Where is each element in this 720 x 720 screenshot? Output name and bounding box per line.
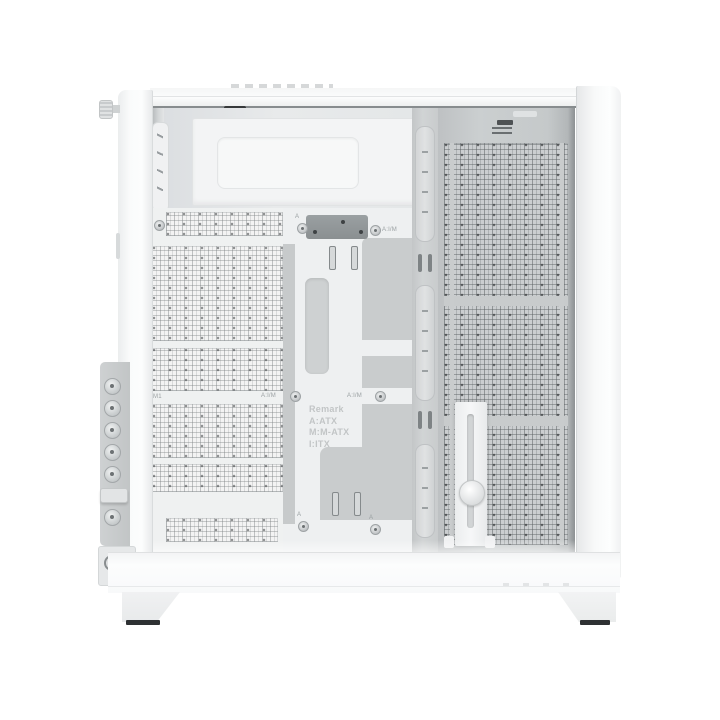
cable-tie-slot: [351, 246, 358, 270]
ssd-cover-plate: [306, 215, 368, 239]
tray-strap: [362, 388, 413, 404]
case-interior: M1: [150, 108, 575, 552]
cable-routing-channel: [412, 108, 441, 552]
pci-thumbscrew: [104, 509, 121, 526]
remark-atx: A:ATX: [309, 416, 349, 428]
cable-tie-slot: [354, 492, 361, 516]
remark-matx: M:M-ATX: [309, 427, 349, 439]
plate-screw: [313, 230, 317, 234]
standoff-screw: [370, 225, 381, 236]
standoff-screw: [375, 391, 386, 402]
case-foot-right: [558, 592, 616, 622]
capsule-ticks: [422, 296, 428, 390]
chamber-top-slot: [497, 120, 513, 125]
mesh-frame-strip: [450, 143, 454, 545]
standoff-label: A: [295, 214, 299, 220]
rear-pillar-tab: [116, 233, 120, 259]
mesh-panel: [166, 212, 283, 236]
channel-slot: [418, 411, 422, 429]
pci-thumbscrew: [104, 400, 121, 417]
motherboard-tray: A A:I/M A:I/M A:I/M A A Remark A:ATX M:M…: [283, 208, 413, 552]
left-mesh-column: M1: [150, 208, 284, 552]
panel-thumbscrew-knob: [99, 100, 113, 119]
tray-strap: [362, 340, 413, 356]
mesh-panel: [166, 518, 278, 542]
standoff-screw: [298, 521, 309, 532]
remark-title: Remark: [309, 404, 349, 416]
bracket-adjust-slot: [467, 414, 474, 528]
standoff-screw: [290, 391, 301, 402]
standoff-label: A:I/M: [347, 393, 362, 399]
capsule-ticks: [422, 137, 428, 231]
gpu-support-bracket: [455, 402, 487, 546]
cable-cover-capsule: [415, 444, 435, 538]
top-radiator-bracket: [192, 118, 418, 206]
chamber-top-tab: [513, 111, 537, 117]
standoff-label: A:I/M: [261, 393, 276, 399]
foot-pad-left: [126, 620, 160, 625]
product-photo-canvas: M1: [0, 0, 720, 720]
remark-itx: I:ITX: [309, 439, 349, 451]
case-foot-left: [122, 592, 180, 622]
mesh-divider-band: [444, 296, 568, 306]
pci-thumbscrew: [104, 378, 121, 395]
pci-thumbscrew: [104, 444, 121, 461]
case-top-panel: [150, 88, 578, 108]
rear-fan-rail: [152, 122, 169, 212]
mesh-frame-strip: [560, 143, 564, 545]
tray-left-recess: [283, 244, 295, 524]
chamber-edge-shadow: [568, 108, 575, 552]
standoff-screw: [154, 220, 165, 231]
motherboard-remark-label: Remark A:ATX M:M-ATX I:ITX: [309, 404, 349, 450]
pc-case: M1: [0, 0, 720, 720]
radiator-bracket-plate: [217, 137, 359, 189]
bottom-band-seam: [108, 586, 620, 587]
standoff-screw: [297, 223, 308, 234]
interior-bottom-highlight: [150, 540, 575, 552]
standoff-screw: [370, 524, 381, 535]
standoff-label: A: [297, 512, 301, 518]
cpu-cutout-recess: [305, 278, 329, 374]
front-pillar: [576, 86, 621, 578]
mesh-panel: [152, 348, 283, 391]
foot-pad-right: [580, 620, 610, 625]
standoff-label: A:I/M: [382, 227, 397, 233]
cable-cover-capsule: [415, 126, 435, 242]
cable-tie-slot: [329, 246, 336, 270]
pci-latch: [100, 488, 128, 503]
bottom-band-marks: [503, 583, 573, 586]
mesh-panel: [152, 246, 283, 341]
capsule-ticks: [422, 455, 428, 527]
pci-slot-plate: [100, 362, 130, 546]
case-bottom-band: [108, 552, 620, 593]
plate-screw: [359, 230, 363, 234]
channel-slot: [418, 254, 422, 272]
cable-tie-slot: [332, 492, 339, 516]
gpu-support-knob: [459, 480, 485, 506]
pci-thumbscrew: [104, 466, 121, 483]
mesh-panel: [152, 464, 283, 492]
mesh-panel: [152, 404, 283, 458]
fan-position-label: M1: [153, 394, 162, 400]
top-panel-seam: [150, 96, 578, 97]
channel-slot: [428, 411, 432, 429]
chamber-vent-mark: [492, 132, 512, 134]
plate-screw: [341, 220, 345, 224]
channel-slot: [428, 254, 432, 272]
standoff-label: A: [369, 515, 373, 521]
cable-cover-capsule: [415, 285, 435, 401]
chamber-vent-mark: [492, 127, 512, 129]
rear-fan-slot-marks: [157, 130, 163, 204]
pci-thumbscrew: [104, 422, 121, 439]
